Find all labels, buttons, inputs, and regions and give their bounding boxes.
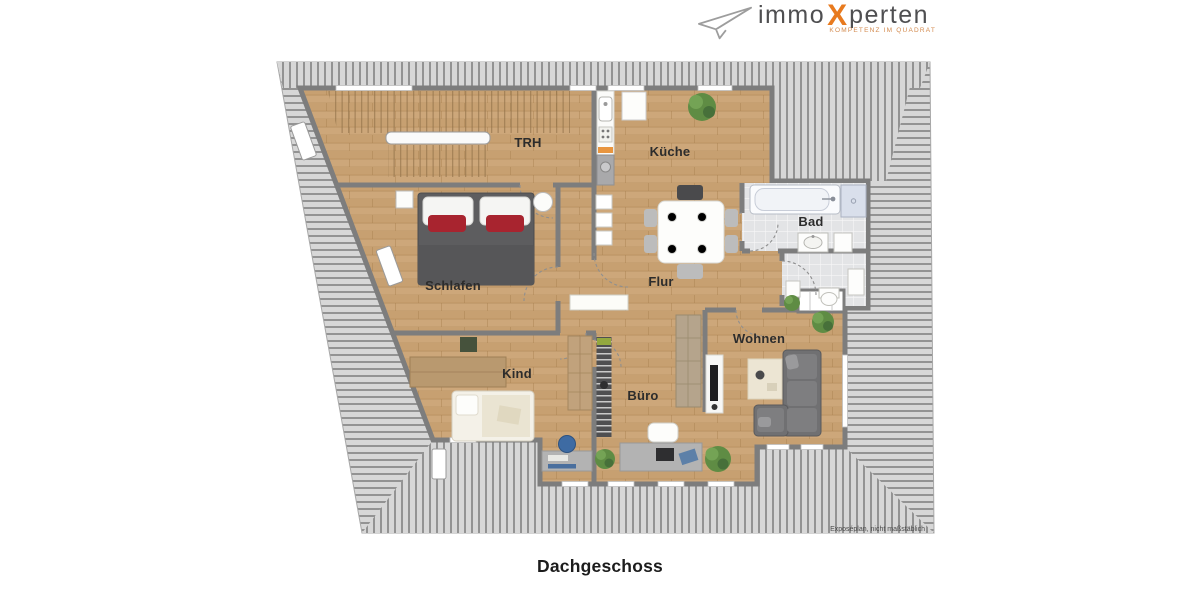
plant-wohnen — [812, 311, 834, 333]
room-label-wohnen: Wohnen — [733, 331, 785, 346]
brand-tagline: KOMPETENZ IM QUADRAT — [829, 27, 936, 34]
shower — [841, 185, 866, 217]
floorplan: TRH Küche Bad Schlafen Flur Kind Büro Wo… — [270, 55, 940, 540]
fridge — [622, 92, 646, 120]
room-label-bad: Bad — [798, 214, 823, 229]
brand-suffix: perten — [849, 1, 929, 29]
room-label-buero: Büro — [627, 388, 658, 403]
sideboard — [570, 295, 628, 310]
rug — [748, 359, 782, 399]
wc-toilet — [819, 288, 839, 306]
bed-double — [418, 193, 534, 285]
logo: immoXperten KOMPETENZ IM QUADRAT — [696, 2, 936, 46]
tv-unit — [706, 355, 723, 413]
wc-sink — [786, 281, 800, 297]
plant-buero-right — [705, 446, 731, 472]
floorplan-drawing: TRH Küche Bad Schlafen Flur Kind Büro Wo… — [270, 55, 940, 540]
wardrobe-wohnen — [676, 315, 701, 407]
page: immoXperten KOMPETENZ IM QUADRAT — [0, 0, 1200, 600]
side-table — [534, 193, 553, 212]
bed-kind — [452, 391, 534, 441]
plant-buero-left — [595, 449, 615, 469]
room-label-trh: TRH — [514, 135, 541, 150]
plant-flur — [784, 295, 800, 311]
shelf-buero — [597, 337, 612, 437]
bad-sink — [798, 233, 828, 252]
wardrobe-kind — [568, 336, 592, 410]
wc-cabinet — [848, 269, 864, 295]
brand-prefix: immo — [758, 1, 825, 29]
room-label-kueche: Küche — [650, 144, 691, 159]
paper-plane-icon — [696, 5, 754, 41]
room-label-schlafen: Schlafen — [425, 278, 481, 293]
bathtub — [750, 185, 840, 214]
floor-title: Dachgeschoss — [0, 556, 1200, 577]
plan-disclaimer: Exposéplan, nicht maßstäblich — [705, 526, 925, 533]
bad-cabinet — [834, 233, 852, 252]
plant-kitchen — [688, 93, 716, 121]
room-label-flur: Flur — [648, 274, 673, 289]
nightstand — [396, 191, 413, 208]
room-label-kind: Kind — [502, 366, 532, 381]
kitchen-counter — [596, 91, 614, 245]
